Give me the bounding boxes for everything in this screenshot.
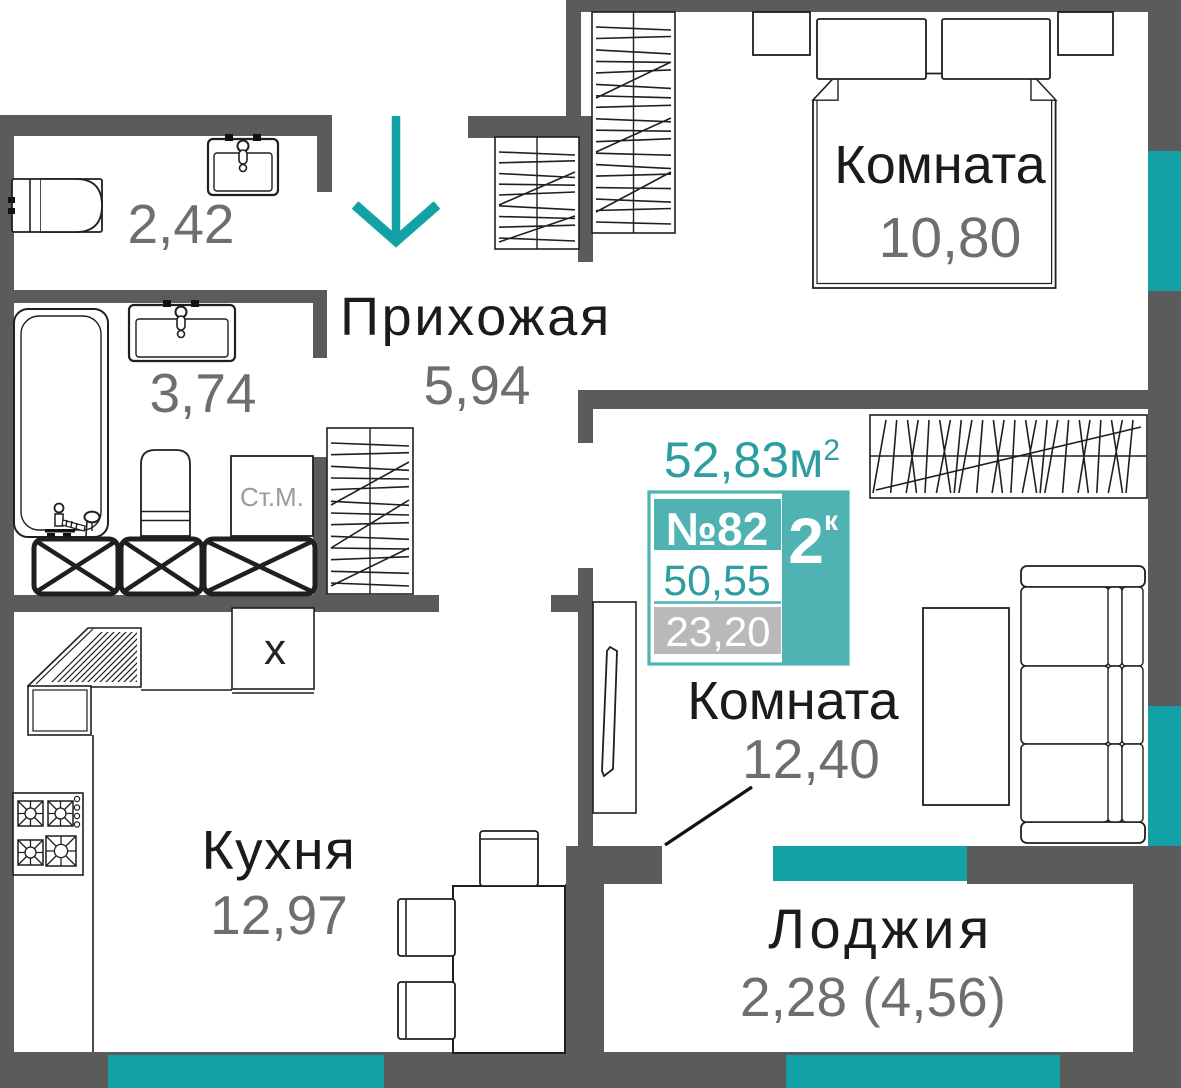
svg-text:5,94: 5,94 [423,354,530,416]
svg-text:Лоджия: Лоджия [768,897,993,960]
svg-text:52,83м2: 52,83м2 [664,432,840,488]
svg-text:Комната: Комната [687,671,899,731]
svg-text:12,97: 12,97 [210,884,348,946]
svg-text:2,42: 2,42 [127,193,234,255]
svg-text:12,40: 12,40 [742,728,880,790]
svg-text:3,74: 3,74 [149,362,256,424]
svg-text:Ст.М.: Ст.М. [240,482,304,512]
svg-text:2: 2 [788,505,824,577]
svg-text:х: х [264,625,286,674]
svg-text:50,55: 50,55 [663,557,771,605]
svg-text:10,80: 10,80 [879,206,1022,270]
svg-text:№82: №82 [666,503,768,555]
svg-text:2,28 (4,56): 2,28 (4,56) [740,966,1006,1028]
svg-text:к: к [824,505,839,536]
svg-text:23,20: 23,20 [665,608,770,655]
svg-text:Прихожая: Прихожая [340,287,612,347]
svg-text:Кухня: Кухня [202,819,357,881]
svg-text:Комната: Комната [834,135,1046,195]
